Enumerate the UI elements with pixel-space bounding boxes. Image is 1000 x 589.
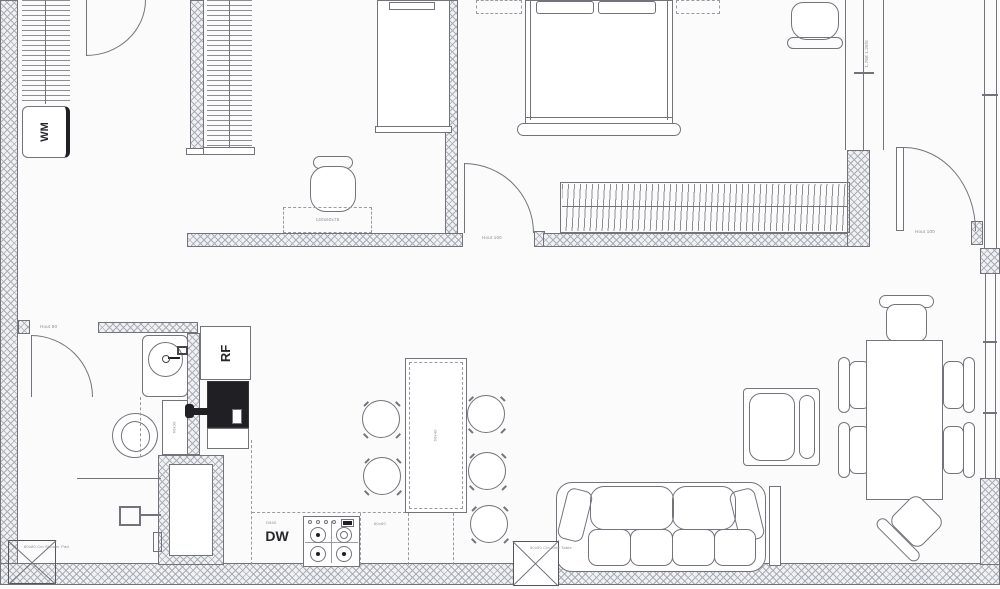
bar-stool [467, 395, 505, 433]
stool-leg [364, 490, 369, 495]
window-dining-line [995, 274, 996, 478]
stool-leg [395, 433, 400, 438]
counter-dim-label: D540 [266, 521, 276, 526]
stool-leg [469, 485, 474, 490]
stool-leg [468, 428, 473, 433]
counter-edge [251, 440, 252, 565]
floor-plan: 1.768 1.26/5 Hout 90 Hout 100 Hout 100 W… [0, 0, 1000, 589]
desk: 140x60x75 [283, 207, 372, 233]
shower-valve [153, 532, 162, 552]
sofa-seat-cushion [588, 529, 631, 566]
dining-table [866, 340, 943, 500]
console-table [769, 486, 781, 566]
dining-chair-back [963, 422, 975, 478]
counter-divider [360, 513, 361, 565]
wardrobe [377, 0, 450, 128]
sink-faucet [177, 346, 188, 355]
door-label-bathroom: Hout 90 [40, 324, 57, 329]
door-swing-closet [86, 0, 146, 56]
stove-display-screen [343, 521, 352, 525]
desk-chair-seat [310, 166, 356, 212]
lounge-chair-back [799, 395, 815, 459]
sofa-back-cushion [590, 486, 674, 530]
sofa-seat-cushion [630, 529, 673, 566]
window-northeast-tick [982, 94, 998, 96]
sink-drain [162, 355, 170, 363]
dining-chair-back [963, 357, 975, 413]
bed [525, 0, 673, 127]
bath-cabinet-label: 60x30 [173, 422, 178, 434]
wall-east-lower [980, 478, 1000, 565]
bedroom-chair [791, 2, 839, 40]
stool-leg [396, 490, 401, 495]
stool-leg [503, 538, 508, 543]
bed-rail [530, 0, 531, 120]
kitchen-sink [207, 381, 249, 428]
stove-grate-line [331, 521, 332, 563]
sofa-back-cushion [672, 486, 736, 530]
bar-stool [363, 457, 401, 495]
closet-rod [45, 0, 46, 104]
wall-bedroom-east [847, 150, 870, 247]
kitchen-sink-basin [232, 409, 242, 424]
door-label-entry: Hout 100 [915, 229, 935, 234]
kitchen-cabinet [207, 428, 249, 449]
duct-shaft-inner [169, 464, 213, 556]
bed-foot-line [525, 117, 673, 118]
kitchen-island-inner [409, 362, 463, 509]
shower-screen [77, 478, 161, 479]
stove-burner-center [316, 552, 320, 556]
bar-stool [362, 400, 400, 438]
desk-dimension-label: 140x60x75 [316, 217, 340, 222]
dishwasher-label: DW [253, 528, 301, 544]
window-dimension-label: 1.768 1.26/5 [864, 40, 869, 67]
bedroom-closet-rod [562, 206, 848, 207]
door-label-bedroom: Hout 100 [482, 235, 502, 240]
door-swing-entry [904, 147, 976, 231]
bed-rail [667, 0, 668, 120]
stool-leg [501, 485, 506, 490]
washing-machine-label: WM [38, 122, 50, 142]
stool-leg [363, 433, 368, 438]
window-northeast-line [996, 0, 997, 249]
sofa-seat-cushion [672, 529, 715, 566]
dining-chair-seat [886, 304, 927, 342]
window-bedroom-line [883, 0, 884, 150]
window-dining-line [985, 274, 986, 478]
stool-leg [501, 453, 506, 458]
door-swing-bathroom [31, 335, 93, 397]
stove-knob [332, 520, 336, 524]
wall-left [0, 0, 18, 585]
wardrobe-inner [389, 2, 435, 10]
refrigerator: RF [200, 326, 251, 380]
closet-rod [229, 0, 230, 148]
window-dining-tick [983, 341, 997, 343]
door-jamb-bath [18, 320, 30, 334]
closet-hangers [22, 0, 70, 104]
wall-bath-east [187, 333, 200, 455]
window-bedroom-line [863, 0, 864, 150]
window-northeast-line [984, 0, 985, 249]
bar-stool [468, 452, 506, 490]
stove-burner-ring [340, 531, 348, 539]
counter-divider [453, 513, 454, 565]
lounge-chair-seat [749, 393, 795, 461]
stove-knob [324, 520, 328, 524]
stool-leg [503, 506, 508, 511]
wall-hall-north-right [543, 233, 850, 247]
pillow [598, 1, 656, 14]
counter-divider [408, 513, 409, 565]
window-bedroom-tick [854, 72, 874, 74]
washing-machine: WM [22, 106, 70, 158]
stool-leg [364, 458, 369, 463]
bed-footboard [517, 123, 681, 136]
stool-leg [471, 506, 476, 511]
door-leaf-entry [896, 147, 904, 231]
shower-arm [141, 514, 161, 516]
bar-stool [470, 505, 508, 543]
refrigerator-label: RF [218, 344, 233, 361]
pillow [536, 1, 594, 14]
wall-east-upper [980, 248, 1000, 274]
stool-leg [500, 428, 505, 433]
stool-leg [468, 396, 473, 401]
window-dining-tick [983, 412, 997, 414]
wall-closet-partition [190, 0, 204, 152]
stove-knob [308, 520, 312, 524]
kitchen-faucet-knob [185, 404, 194, 418]
stool-leg [396, 458, 401, 463]
stove-burner-center [316, 533, 320, 537]
stool-leg [471, 538, 476, 543]
door-swing-bedroom [464, 163, 534, 233]
wardrobe-cap [375, 126, 452, 133]
stool-leg [469, 453, 474, 458]
bedroom-chair-base [787, 37, 843, 49]
stool-leg [500, 396, 505, 401]
bedroom-closet-hangers [562, 184, 848, 231]
dining-chair-seat [943, 426, 964, 474]
wall-bath-north [98, 322, 198, 333]
stove-knob [316, 520, 320, 524]
toilet-partition [140, 397, 141, 457]
dining-chair-seat [943, 361, 964, 409]
side-table-label: 50x50 Cm Side Table [530, 546, 572, 551]
sofa-seat-cushion [714, 529, 756, 566]
counter-edge [252, 512, 406, 513]
stove-burner-center [342, 552, 346, 556]
wall-bottom [0, 563, 1000, 585]
nightstand [476, 0, 522, 14]
nightstand [676, 0, 720, 14]
stool-leg [363, 401, 368, 406]
counter-dim-label: 60x60 [374, 522, 386, 527]
wall-hall-north-left [187, 233, 463, 247]
window-bedroom-line [845, 0, 846, 150]
stool-leg [395, 401, 400, 406]
shower-tray-label: 80x80 Cm Shower Pad [24, 545, 69, 550]
shower-head [119, 506, 141, 526]
closet-end-cap [203, 147, 255, 155]
